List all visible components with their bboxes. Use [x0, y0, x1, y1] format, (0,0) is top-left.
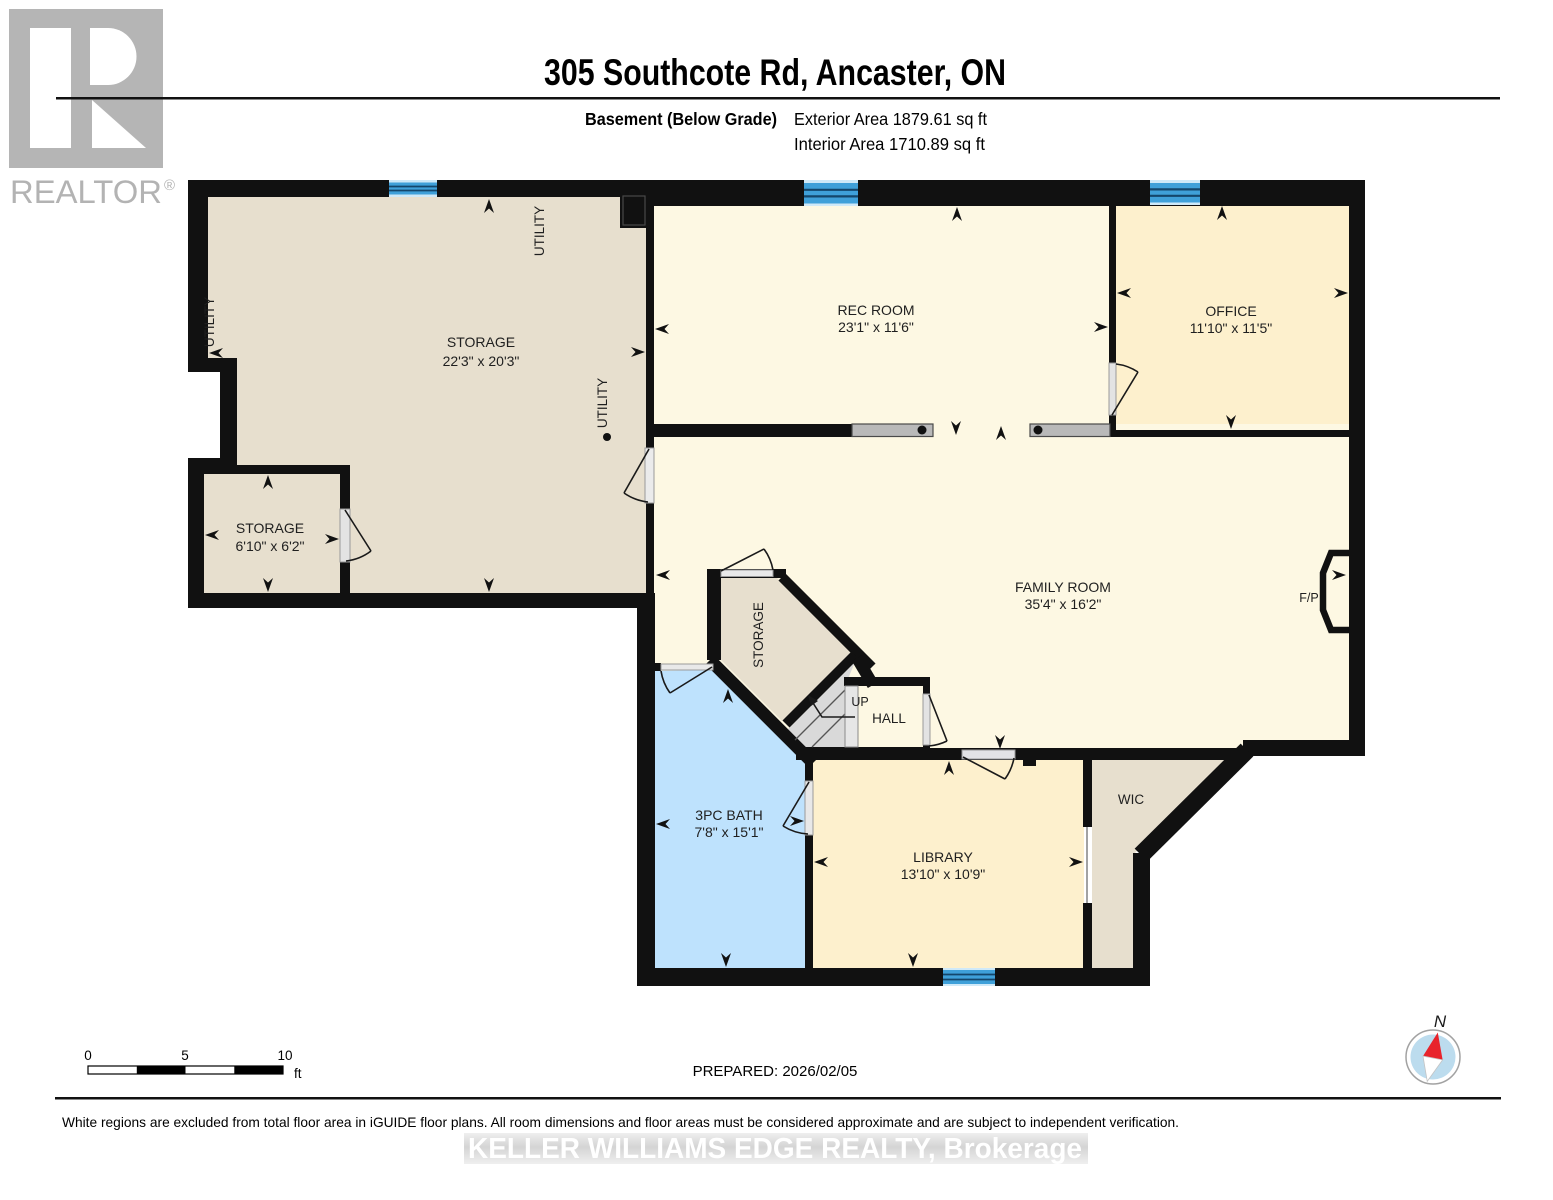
svg-text:23'1" x 11'6": 23'1" x 11'6" — [838, 319, 914, 335]
svg-text:5: 5 — [181, 1048, 189, 1063]
svg-text:13'10" x 10'9": 13'10" x 10'9" — [901, 866, 986, 882]
svg-text:ft: ft — [294, 1066, 302, 1081]
svg-text:UTILITY: UTILITY — [202, 297, 217, 347]
svg-text:UP: UP — [851, 695, 868, 709]
svg-text:Exterior Area 1879.61 sq ft: Exterior Area 1879.61 sq ft — [794, 109, 987, 129]
svg-text:REALTOR: REALTOR — [10, 174, 162, 210]
svg-text:FAMILY ROOM: FAMILY ROOM — [1015, 579, 1111, 595]
svg-text:UTILITY: UTILITY — [595, 378, 610, 428]
svg-text:OFFICE: OFFICE — [1205, 303, 1256, 319]
svg-text:7'8" x 15'1": 7'8" x 15'1" — [695, 824, 764, 840]
svg-text:STORAGE: STORAGE — [751, 602, 766, 668]
svg-text:6'10" x 6'2": 6'10" x 6'2" — [236, 538, 305, 554]
svg-text:11'10" x 11'5": 11'10" x 11'5" — [1190, 320, 1273, 336]
svg-text:PREPARED: 2026/02/05: PREPARED: 2026/02/05 — [693, 1063, 858, 1080]
svg-text:WIC: WIC — [1118, 792, 1144, 807]
svg-text:Interior Area 1710.89 sq ft: Interior Area 1710.89 sq ft — [794, 134, 985, 154]
svg-text:3PC BATH: 3PC BATH — [695, 807, 762, 823]
svg-text:35'4" x 16'2": 35'4" x 16'2" — [1025, 596, 1102, 612]
svg-text:22'3" x 20'3": 22'3" x 20'3" — [443, 353, 520, 369]
svg-text:White regions are excluded fro: White regions are excluded from total fl… — [62, 1114, 1179, 1130]
svg-text:KELLER WILLIAMS EDGE REALTY, B: KELLER WILLIAMS EDGE REALTY, Brokerage — [468, 1133, 1082, 1165]
svg-text:®: ® — [164, 177, 175, 194]
svg-text:10: 10 — [277, 1048, 292, 1063]
svg-text:N: N — [1434, 1012, 1447, 1031]
svg-text:UTILITY: UTILITY — [532, 206, 547, 256]
svg-text:STORAGE: STORAGE — [236, 520, 304, 536]
svg-text:F/P: F/P — [1299, 591, 1318, 605]
svg-text:0: 0 — [84, 1048, 92, 1063]
svg-text:HALL: HALL — [872, 711, 906, 726]
svg-text:Basement (Below Grade): Basement (Below Grade) — [585, 109, 777, 129]
svg-text:LIBRARY: LIBRARY — [913, 849, 973, 865]
svg-text:STORAGE: STORAGE — [447, 334, 515, 350]
svg-text:REC ROOM: REC ROOM — [838, 302, 915, 318]
svg-text:305 Southcote Rd, Ancaster, ON: 305 Southcote Rd, Ancaster, ON — [544, 52, 1006, 93]
